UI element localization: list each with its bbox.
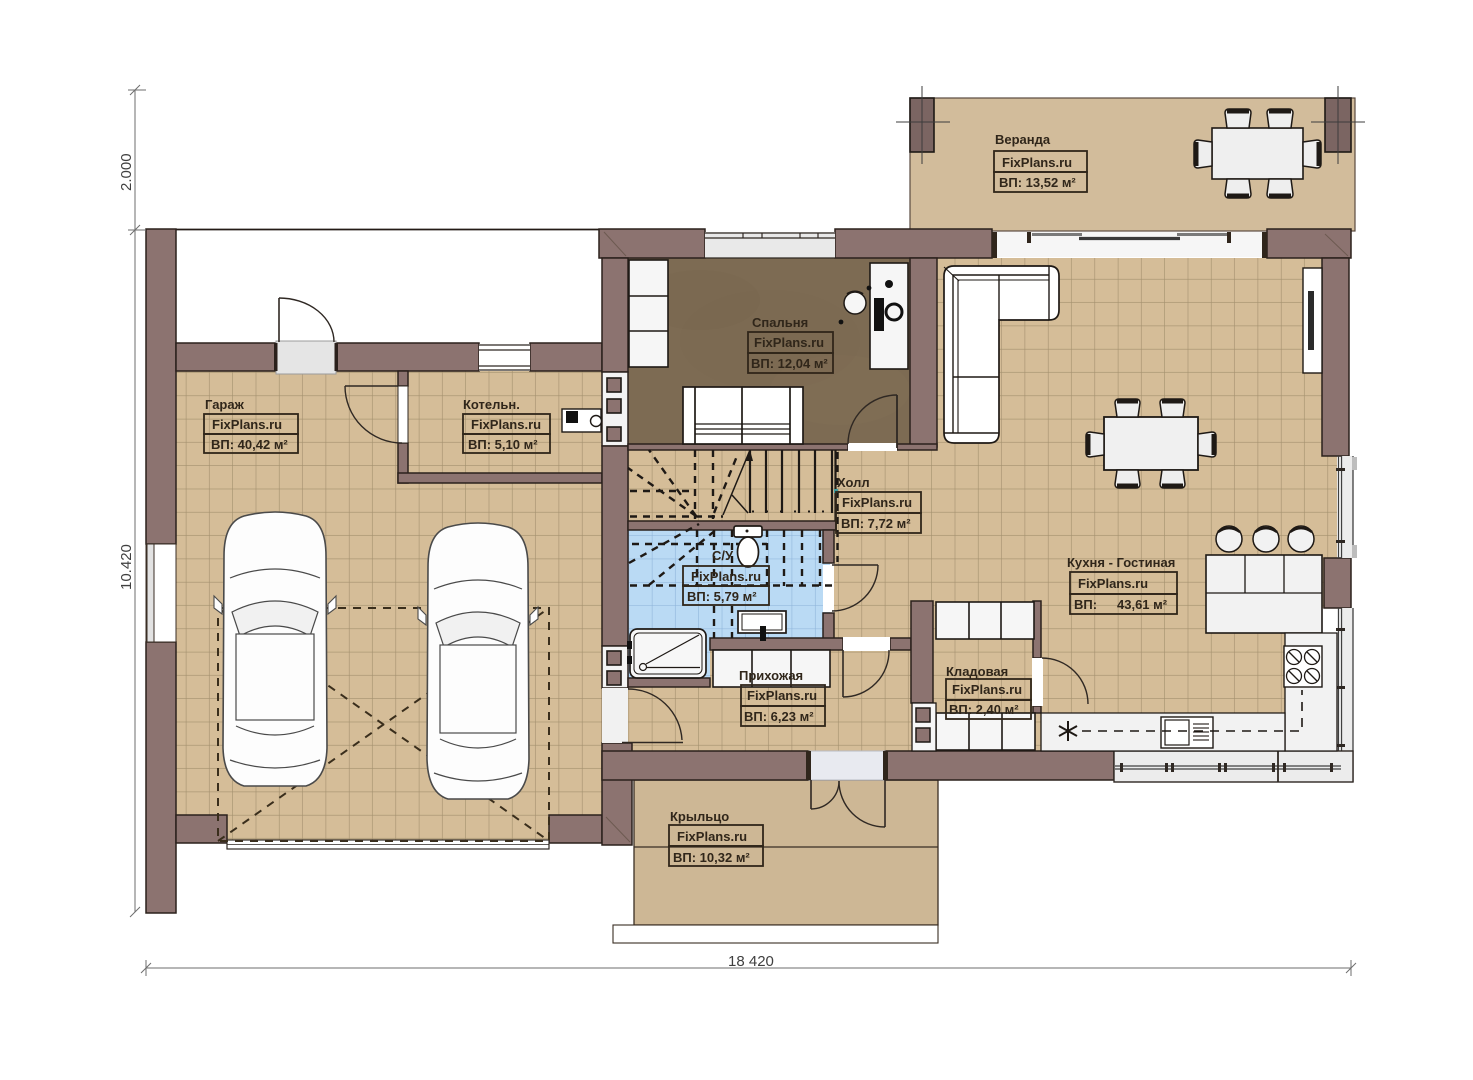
svg-text:FixPlans.ru: FixPlans.ru	[1078, 576, 1148, 591]
svg-text:ВП: 10,32 м²: ВП: 10,32 м²	[673, 850, 750, 865]
svg-text:С/У: С/У	[712, 548, 734, 563]
svg-text:ВП: 40,42 м²: ВП: 40,42 м²	[211, 437, 288, 452]
svg-text:ВП:: ВП:	[1074, 597, 1097, 612]
svg-text:ВП: 7,72 м²: ВП: 7,72 м²	[841, 516, 911, 531]
svg-text:FixPlans.ru: FixPlans.ru	[691, 569, 761, 584]
svg-text:Холл: Холл	[837, 475, 870, 490]
svg-text:FixPlans.ru: FixPlans.ru	[952, 682, 1022, 697]
svg-text:ВП: 5,79 м²: ВП: 5,79 м²	[687, 589, 757, 604]
svg-text:2.000: 2.000	[118, 153, 135, 191]
svg-text:Кладовая: Кладовая	[946, 664, 1008, 679]
svg-text:Гараж: Гараж	[205, 397, 245, 412]
svg-text:FixPlans.ru: FixPlans.ru	[754, 335, 824, 350]
svg-text:ВП: 2,40 м²: ВП: 2,40 м²	[949, 702, 1019, 717]
svg-text:FixPlans.ru: FixPlans.ru	[677, 829, 747, 844]
svg-text:ВП: 13,52 м²: ВП: 13,52 м²	[999, 175, 1076, 190]
svg-text:Спальня: Спальня	[752, 315, 808, 330]
svg-text:Крыльцо: Крыльцо	[670, 809, 729, 824]
svg-text:ВП: 5,10 м²: ВП: 5,10 м²	[468, 437, 538, 452]
svg-text:18 420: 18 420	[728, 953, 774, 970]
svg-text:Кухня - Гостиная: Кухня - Гостиная	[1067, 555, 1175, 570]
svg-text:Котельн.: Котельн.	[463, 397, 520, 412]
svg-text:FixPlans.ru: FixPlans.ru	[842, 495, 912, 510]
svg-text:43,61 м²: 43,61 м²	[1117, 597, 1168, 612]
svg-text:FixPlans.ru: FixPlans.ru	[747, 688, 817, 703]
svg-text:FixPlans.ru: FixPlans.ru	[471, 417, 541, 432]
svg-text:Прихожая: Прихожая	[739, 668, 803, 683]
svg-text:ВП: 6,23 м²: ВП: 6,23 м²	[744, 709, 814, 724]
svg-text:FixPlans.ru: FixPlans.ru	[1002, 155, 1072, 170]
svg-text:FixPlans.ru: FixPlans.ru	[212, 417, 282, 432]
svg-text:ВП: 12,04 м²: ВП: 12,04 м²	[751, 356, 828, 371]
svg-text:10.420: 10.420	[118, 544, 135, 590]
svg-text:Веранда: Веранда	[995, 132, 1051, 147]
